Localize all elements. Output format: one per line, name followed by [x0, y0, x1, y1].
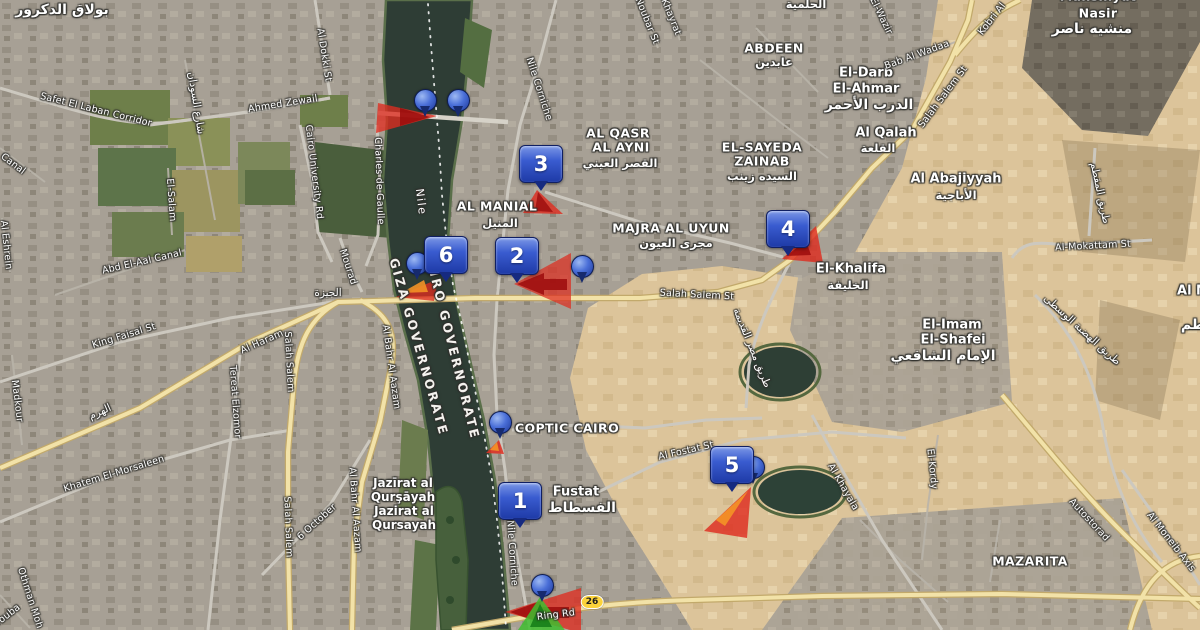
district-al-abajiyyah-ar: الأباجية	[935, 188, 976, 202]
marker-number: 1	[513, 489, 528, 513]
district-nasir: Nasir	[1079, 6, 1118, 21]
district-el-khalifa: El-Khalifa	[816, 262, 886, 277]
district-al-mokattam-cut: Al M	[1177, 284, 1200, 299]
district-al-ayni: AL AYNI	[592, 140, 649, 155]
district-manshiyat: Manshiyat	[1060, 0, 1137, 4]
district-abdeen-ar: عابدين	[755, 55, 793, 69]
district-el-imam: El-Imam	[922, 318, 981, 333]
district-al-qalah-ar: القلعة	[861, 141, 896, 155]
satellite-map[interactable]: بولاق الدكرورالحلميةManshiyatNasirمنشيه …	[0, 0, 1200, 630]
marker-number: 4	[781, 217, 796, 241]
numbered-marker-3[interactable]: 3	[519, 145, 563, 183]
district-el-ahmar: El-Ahmar	[833, 82, 900, 97]
marker-number: 2	[510, 244, 525, 268]
district-al-abajiyyah: Al Abajiyyah	[910, 172, 1001, 187]
island-jazirat-4: Qursayah	[372, 518, 436, 532]
district-el-khalifa-ar: الخليفة	[827, 278, 868, 292]
numbered-marker-1[interactable]: 1	[498, 482, 542, 520]
island-jazirat-1: Jazīrat al	[373, 476, 433, 490]
district-mazarita: MAZARITA	[992, 554, 1068, 569]
district-al-mokattam-ar-cut: المقطم	[1181, 317, 1200, 333]
island-jazirat-2: Qurşāyah	[371, 490, 435, 504]
numbered-marker-4[interactable]: 4	[766, 210, 810, 248]
district-majra-al-uyun-ar: مجرى العيون	[639, 236, 713, 250]
district-al-manial-ar: المنيل	[482, 216, 518, 230]
district-coptic-cairo: COPTIC CAIRO	[515, 421, 619, 436]
numbered-marker-6[interactable]: 6	[424, 236, 468, 274]
numbered-marker-2[interactable]: 2	[495, 237, 539, 275]
map-pin-icon[interactable]	[531, 574, 554, 597]
street-label: Salah Salem	[281, 496, 294, 558]
district-nasir-ar: منشيه ناصر	[1052, 21, 1132, 37]
district-qasr-ayni-ar: القصر العيني	[583, 156, 658, 170]
district-imam-shafei-ar: الإمام الشافعي	[890, 348, 995, 364]
map-pin-icon[interactable]	[414, 89, 437, 112]
district-zainab: ZAINAB	[734, 154, 789, 169]
camera-cones-layer	[0, 0, 1200, 630]
district-al-qalah: Al Qalah	[855, 126, 916, 141]
district-fustat: Fustat	[553, 485, 599, 500]
marker-number: 3	[534, 152, 549, 176]
district-al-qasr: AL QASR	[586, 126, 650, 141]
marker-number: 6	[439, 243, 454, 267]
district-el-shafei: El-Shafei	[920, 333, 985, 348]
district-fustat-ar: الفسطاط	[548, 500, 616, 516]
district-bulaq-dakrur: بولاق الدكرور	[15, 2, 109, 18]
district-sayeda-zainab-ar: السيده زينب	[727, 169, 797, 183]
map-pin-icon[interactable]	[447, 89, 470, 112]
street-label: الجيزة	[314, 287, 341, 299]
route-badge: 26	[581, 595, 604, 609]
district-sayeda: EL-SAYEDA	[722, 140, 802, 155]
island-jazirat-3: Jazirat al	[374, 504, 434, 518]
district-al-manial: AL MANIAL	[457, 199, 537, 214]
district-majra-al-uyun: MAJRA AL UYUN	[612, 221, 729, 236]
district-darb-ahmar-ar: الدرب الأحمر	[825, 97, 914, 113]
district-abdeen: ABDEEN	[744, 41, 804, 56]
marker-number: 5	[725, 453, 740, 477]
map-pin-icon[interactable]	[489, 411, 512, 434]
numbered-marker-5[interactable]: 5	[710, 446, 754, 484]
district-helmeya: الحلمية	[786, 0, 827, 11]
map-pin-icon[interactable]	[571, 255, 594, 278]
